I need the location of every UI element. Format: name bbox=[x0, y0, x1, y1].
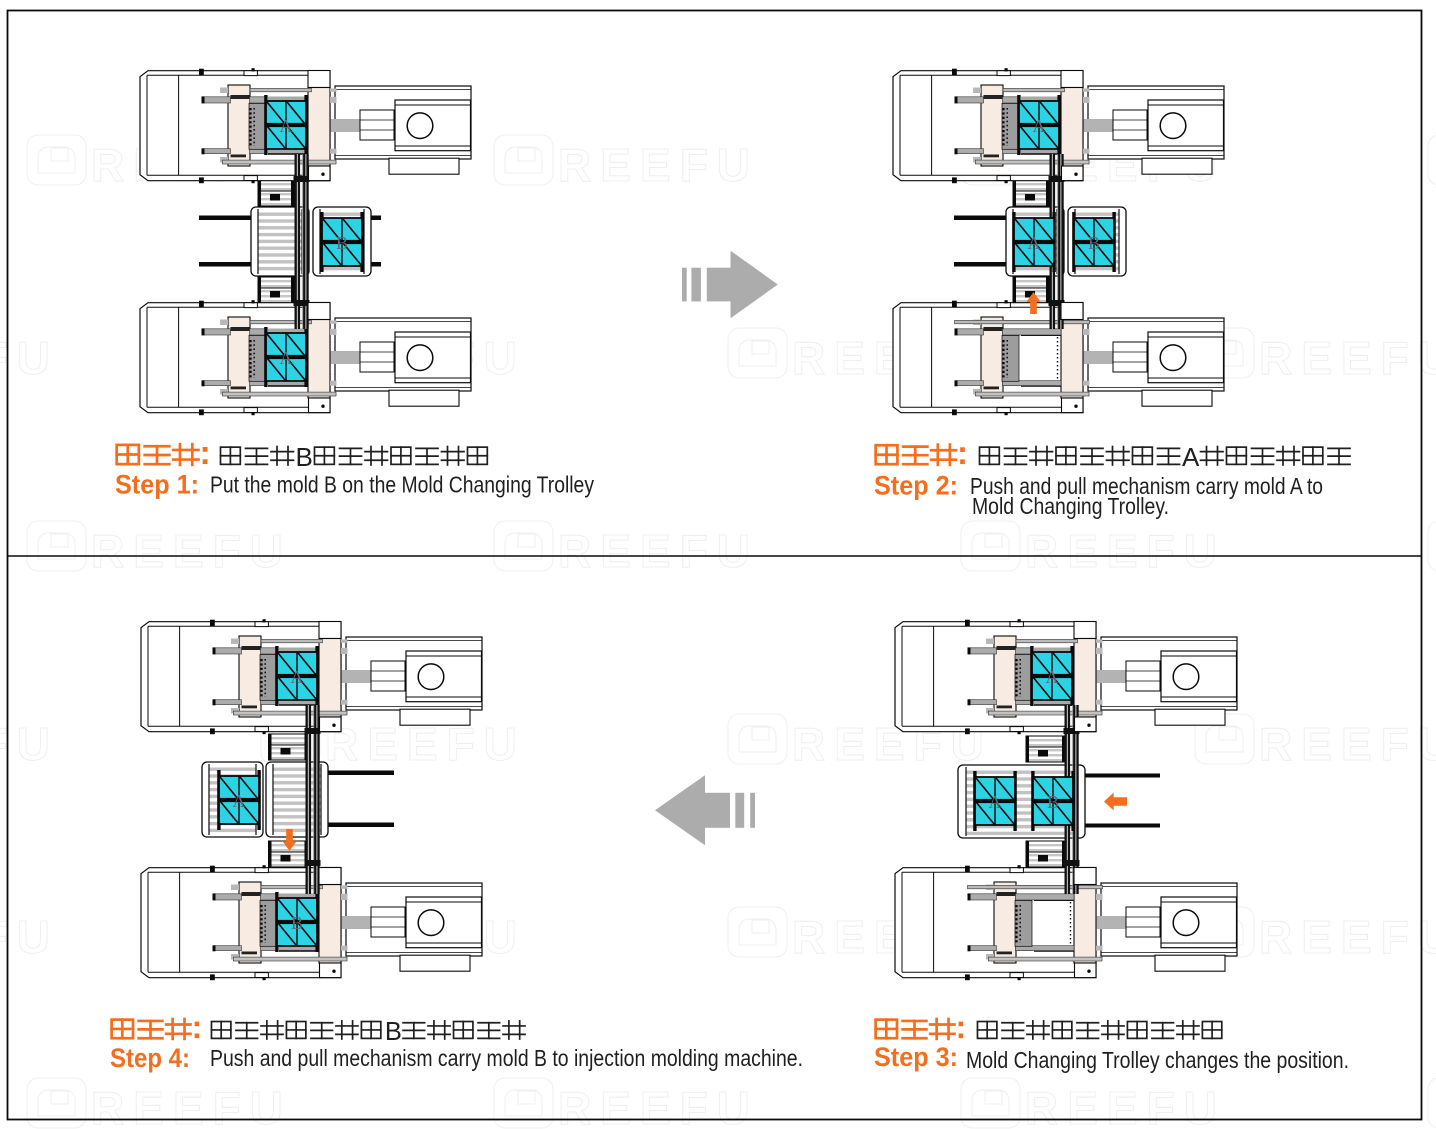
svg-text:Step 4:: Step 4: bbox=[110, 1043, 190, 1073]
svg-text:Mold Changing Trolley changes: Mold Changing Trolley changes the positi… bbox=[966, 1047, 1349, 1073]
svg-text:A: A bbox=[291, 667, 304, 687]
svg-text:B: B bbox=[336, 233, 348, 253]
svg-text:B: B bbox=[1047, 792, 1059, 812]
svg-text:REEFU: REEFU bbox=[91, 525, 292, 577]
svg-text:A: A bbox=[1028, 233, 1041, 253]
svg-text:REEFU: REEFU bbox=[558, 139, 759, 191]
svg-text:REEFU: REEFU bbox=[1259, 911, 1436, 963]
svg-text:A: A bbox=[280, 348, 293, 368]
svg-text:B: B bbox=[385, 1018, 402, 1046]
svg-text:REEFU: REEFU bbox=[0, 332, 59, 384]
svg-text:A: A bbox=[1033, 116, 1046, 136]
svg-text:A: A bbox=[1182, 442, 1200, 472]
svg-text:REEFU: REEFU bbox=[0, 718, 59, 770]
svg-text:A: A bbox=[233, 791, 246, 811]
svg-text:B: B bbox=[1088, 233, 1100, 253]
svg-text:REEFU: REEFU bbox=[558, 1082, 759, 1129]
svg-text:REEFU: REEFU bbox=[325, 718, 526, 770]
svg-text:REEFU: REEFU bbox=[0, 911, 59, 963]
svg-text:Mold Changing Trolley.: Mold Changing Trolley. bbox=[972, 493, 1169, 519]
svg-text:Put the mold B on the Mold Cha: Put the mold B on the Mold Changing Trol… bbox=[210, 472, 594, 498]
svg-text:B: B bbox=[291, 913, 303, 933]
svg-text:REEFU: REEFU bbox=[558, 525, 759, 577]
svg-text:Step 3:: Step 3: bbox=[874, 1042, 958, 1072]
svg-text:REEFU: REEFU bbox=[1025, 1082, 1226, 1129]
svg-text:REEFU: REEFU bbox=[1259, 332, 1436, 384]
svg-text:A: A bbox=[989, 792, 1002, 812]
svg-text:Push and pull mechanism carry: Push and pull mechanism carry mold B to … bbox=[210, 1045, 803, 1071]
svg-text:B: B bbox=[296, 442, 313, 472]
svg-text:Step 1:: Step 1: bbox=[115, 470, 199, 500]
svg-text:REEFU: REEFU bbox=[1025, 525, 1226, 577]
svg-text:REEFU: REEFU bbox=[1259, 718, 1436, 770]
svg-text:REEFU: REEFU bbox=[91, 1082, 292, 1129]
svg-text:A: A bbox=[280, 116, 293, 136]
svg-text:Step 2:: Step 2: bbox=[874, 471, 958, 501]
svg-text:A: A bbox=[1046, 667, 1059, 687]
